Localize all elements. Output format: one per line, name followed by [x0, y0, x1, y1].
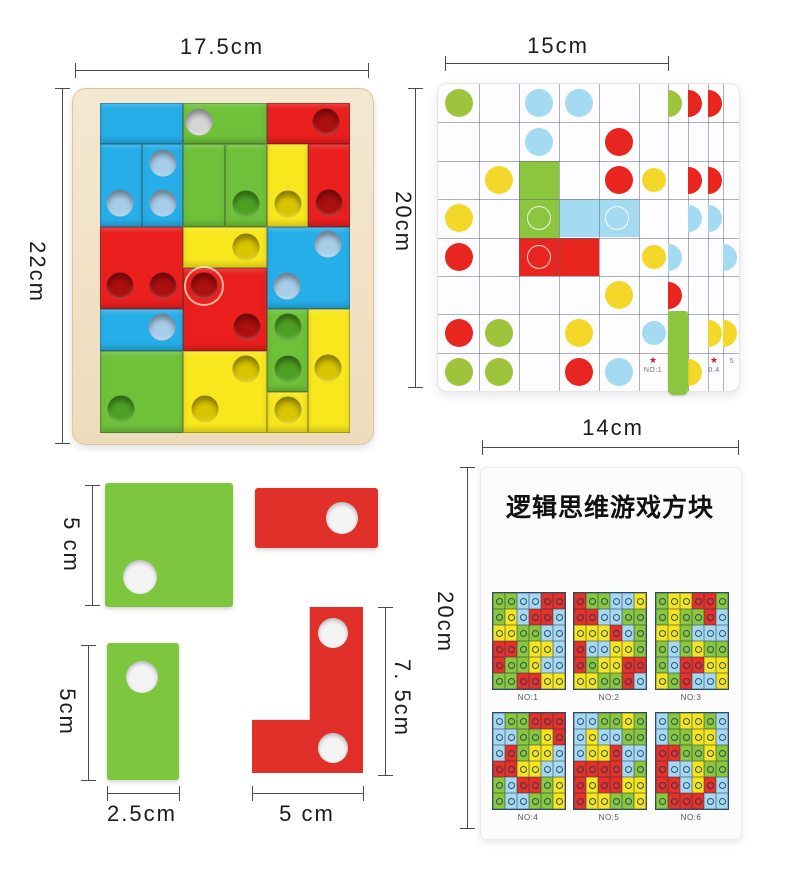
- mini-grid-cell: [610, 609, 622, 625]
- mini-grid-cell: [668, 657, 680, 673]
- mini-grid-cell: [505, 593, 517, 609]
- mini-grid-cell: [656, 777, 668, 793]
- dim-tick: [107, 786, 108, 801]
- mini-grid-cell: [529, 745, 541, 761]
- mini-grid-cell: [553, 673, 565, 689]
- dim-tick: [363, 786, 364, 801]
- mini-grid-cell: [692, 713, 704, 729]
- mini-grid-cell: [634, 641, 646, 657]
- mini-puzzle-label: NO:4: [518, 813, 539, 822]
- mini-grid-cell: [716, 761, 728, 777]
- mini-grid-cell: [668, 729, 680, 745]
- dim-tick: [55, 443, 70, 444]
- mini-grid-cell: [529, 777, 541, 793]
- mini-grid-cell: [586, 641, 598, 657]
- mini-grid-cell: [553, 593, 565, 609]
- board-dot-green: [445, 358, 473, 386]
- piece-hole: [326, 502, 358, 534]
- mini-grid-cell: [704, 593, 716, 609]
- piece-hole: [318, 618, 348, 648]
- game-height-label: 20cm: [390, 191, 416, 253]
- mini-grid-cell: [622, 777, 634, 793]
- mini-grid-cell: [517, 761, 529, 777]
- mini-grid-cell: [704, 745, 716, 761]
- mini-grid-cell: [634, 729, 646, 745]
- edge-card-half-dot: [668, 282, 682, 309]
- grid-line: [438, 314, 739, 315]
- mini-grid-cell: [692, 641, 704, 657]
- dim-tick: [378, 775, 393, 776]
- piece-dot: [192, 396, 219, 423]
- board-dot-green: [485, 319, 513, 347]
- puzzle-width-line: [75, 70, 368, 71]
- mini-grid-cell: [517, 641, 529, 657]
- mini-grid-cell: [610, 777, 622, 793]
- mini-grid-cell: [704, 625, 716, 641]
- mini-grid-cell: [668, 745, 680, 761]
- mini-grid-cell: [586, 657, 598, 673]
- mini-grid-cell: [716, 713, 728, 729]
- mini-puzzle-grid: [492, 592, 566, 690]
- mini-puzzle-label: NO:3: [681, 693, 702, 702]
- vertical-piece-height-line: [88, 645, 89, 780]
- board-dot-blue: [525, 89, 553, 117]
- mini-grid-cell: [680, 777, 692, 793]
- dim-tick: [368, 63, 369, 78]
- mini-grid-cell: [598, 793, 610, 809]
- piece-dot: [232, 191, 259, 218]
- piece-dot: [274, 191, 301, 218]
- mini-grid-cell: [529, 641, 541, 657]
- mini-grid-cell: [517, 729, 529, 745]
- mini-grid-cell: [505, 609, 517, 625]
- vertical-piece-width-label: 2.5cm: [107, 801, 177, 827]
- mini-grid-cell: [553, 625, 565, 641]
- mini-grid-cell: [622, 641, 634, 657]
- dim-tick: [668, 56, 669, 71]
- mini-grid-cell: [610, 593, 622, 609]
- mini-grid-cell: [668, 761, 680, 777]
- piece-dot: [148, 314, 175, 341]
- mini-grid-cell: [529, 793, 541, 809]
- board-dot-red: [445, 319, 473, 347]
- piece-dot: [149, 189, 176, 216]
- mini-grid-cell: [541, 745, 553, 761]
- mini-grid-cell: [634, 609, 646, 625]
- grid-line: [438, 353, 739, 354]
- mini-grid-cell: [622, 745, 634, 761]
- board-dot-yellow: [642, 168, 666, 192]
- piece-dot: [316, 189, 343, 216]
- mini-grid-cell: [610, 641, 622, 657]
- game-width-label: 15cm: [527, 33, 589, 59]
- mini-grid-cell: [622, 593, 634, 609]
- mini-grid-cell: [517, 793, 529, 809]
- mini-grid-cell: [622, 673, 634, 689]
- mini-grid-cell: [505, 625, 517, 641]
- mini-grid-cell: [692, 745, 704, 761]
- mini-grid-cell: [529, 729, 541, 745]
- piece-dot: [274, 314, 301, 341]
- mini-grid-cell: [610, 745, 622, 761]
- mini-grid-cell: [704, 641, 716, 657]
- mini-grid-cell: [517, 713, 529, 729]
- piece-dot: [149, 273, 176, 300]
- booklet-width-line: [482, 447, 738, 448]
- board-dot-green: [445, 89, 473, 117]
- mini-grid-cell: [529, 593, 541, 609]
- dim-tick: [738, 440, 739, 455]
- board-target-ring: [605, 206, 629, 230]
- mini-grid-cell: [704, 729, 716, 745]
- board-dot-green: [485, 358, 513, 386]
- grid-line: [438, 238, 739, 239]
- mini-grid-cell: [680, 729, 692, 745]
- mini-grid-cell: [680, 761, 692, 777]
- mini-grid-cell: [716, 625, 728, 641]
- booklet-height-label: 20cm: [432, 591, 458, 653]
- mini-grid-cell: [656, 657, 668, 673]
- star-icon: ★: [644, 356, 662, 365]
- dim-tick: [81, 645, 96, 646]
- mini-grid-cell: [598, 761, 610, 777]
- dim-tick: [378, 607, 393, 608]
- grid-line: [438, 122, 739, 123]
- mini-grid-cell: [598, 777, 610, 793]
- mini-grid-cell: [574, 609, 586, 625]
- dim-tick: [460, 828, 475, 829]
- mini-puzzle-grid: [573, 712, 647, 810]
- puzzle-piece-blue: [100, 103, 183, 144]
- mini-grid-cell: [598, 593, 610, 609]
- mini-grid-cell: [716, 609, 728, 625]
- puzzle-height-line: [62, 88, 63, 443]
- dim-tick: [75, 63, 76, 78]
- mini-grid-cell: [656, 793, 668, 809]
- mini-grid-cell: [680, 713, 692, 729]
- mini-grid-cell: [680, 745, 692, 761]
- piece-green-square: [105, 483, 233, 607]
- mini-grid-cell: [517, 777, 529, 793]
- piece-dot: [107, 396, 134, 423]
- mini-grid-cell: [622, 625, 634, 641]
- mini-grid-cell: [598, 729, 610, 745]
- star-icon: ★: [708, 356, 719, 365]
- mini-grid-cell: [541, 609, 553, 625]
- piece-dot: [314, 354, 341, 381]
- mini-grid-cell: [634, 793, 646, 809]
- mini-grid-cell: [574, 593, 586, 609]
- piece-hole: [318, 733, 348, 763]
- mini-puzzle-label: NO:2: [599, 693, 620, 702]
- mini-grid-cell: [493, 777, 505, 793]
- board-dot-yellow: [605, 281, 633, 309]
- mini-grid-cell: [668, 673, 680, 689]
- mini-grid-cell: [493, 625, 505, 641]
- mini-grid-cell: [716, 745, 728, 761]
- mini-grid-cell: [622, 729, 634, 745]
- mini-grid-cell: [586, 673, 598, 689]
- mini-grid-cell: [622, 713, 634, 729]
- mini-grid-cell: [529, 673, 541, 689]
- dim-tick: [408, 387, 423, 388]
- edge-card-half-dot: [708, 320, 722, 347]
- piece-dot: [232, 356, 259, 383]
- mini-grid-cell: [574, 729, 586, 745]
- mini-grid-cell: [656, 593, 668, 609]
- game-height-line: [415, 88, 416, 387]
- mini-grid-cell: [692, 761, 704, 777]
- mini-grid-cell: [574, 713, 586, 729]
- dim-tick: [460, 467, 475, 468]
- mini-grid-cell: [553, 729, 565, 745]
- mini-grid-cell: [553, 657, 565, 673]
- mini-grid-cell: [517, 625, 529, 641]
- card-tag-text: NO:1: [644, 367, 662, 374]
- dim-tick: [81, 780, 96, 781]
- logic-game-board: ★NO:1★0.45: [437, 83, 740, 392]
- puzzle-width-label: 17.5cm: [180, 34, 264, 60]
- piece-dot: [107, 273, 134, 300]
- board-target-ring: [527, 206, 551, 230]
- mini-grid-cell: [680, 657, 692, 673]
- mini-grid-cell: [505, 745, 517, 761]
- mini-grid-cell: [656, 641, 668, 657]
- mini-grid-cell: [610, 625, 622, 641]
- booklet-width-label: 14cm: [582, 415, 644, 441]
- card-tag: 5: [730, 356, 734, 365]
- mini-puzzle-label: NO:5: [599, 813, 620, 822]
- edge-card-half-dot: [723, 320, 737, 347]
- mini-grid-cell: [553, 777, 565, 793]
- mini-grid-cell: [656, 609, 668, 625]
- board-dot-red: [565, 358, 593, 386]
- mini-grid-cell: [656, 745, 668, 761]
- dim-tick: [482, 440, 483, 455]
- mini-grid-cell: [704, 713, 716, 729]
- mini-grid-cell: [598, 625, 610, 641]
- mini-grid-cell: [505, 641, 517, 657]
- mini-grid-cell: [541, 761, 553, 777]
- mini-grid-cell: [586, 745, 598, 761]
- mini-grid-cell: [574, 657, 586, 673]
- mini-grid-cell: [586, 625, 598, 641]
- mini-grid-cell: [692, 777, 704, 793]
- vertical-piece-height-label: 5cm: [54, 688, 80, 736]
- mini-grid-cell: [634, 713, 646, 729]
- square-height-label: 5 cm: [58, 517, 84, 573]
- mini-grid-cell: [586, 593, 598, 609]
- mini-grid-cell: [692, 657, 704, 673]
- dim-tick: [85, 485, 100, 486]
- booklet-title: 逻辑思维游戏方块: [480, 488, 740, 524]
- mini-grid-cell: [634, 625, 646, 641]
- mini-grid-cell: [622, 793, 634, 809]
- mini-grid-cell: [622, 761, 634, 777]
- card-tag-text: 5: [730, 358, 734, 365]
- mini-grid-cell: [586, 729, 598, 745]
- mini-grid-cell: [716, 593, 728, 609]
- board-dot-blue: [642, 321, 666, 345]
- mini-grid-cell: [704, 673, 716, 689]
- dim-tick: [252, 786, 253, 801]
- mini-grid-cell: [692, 793, 704, 809]
- mini-grid-cell: [610, 729, 622, 745]
- l-piece-width-line: [252, 793, 363, 794]
- edge-card-half-dot: [708, 90, 722, 117]
- mini-grid-cell: [704, 793, 716, 809]
- piece-dot: [274, 396, 301, 423]
- mini-grid-cell: [505, 761, 517, 777]
- mini-grid-cell: [704, 609, 716, 625]
- mini-grid-cell: [716, 673, 728, 689]
- piece-dot: [233, 314, 260, 341]
- mini-puzzle-grid: [655, 712, 729, 810]
- mini-grid-cell: [586, 793, 598, 809]
- mini-grid-cell: [598, 641, 610, 657]
- mini-grid-cell: [574, 745, 586, 761]
- mini-grid-cell: [541, 713, 553, 729]
- mini-grid-cell: [634, 657, 646, 673]
- piece-dot: [186, 108, 213, 135]
- mini-grid-cell: [517, 609, 529, 625]
- dim-tick: [445, 56, 446, 71]
- mini-grid-cell: [716, 641, 728, 657]
- dim-tick: [408, 88, 423, 89]
- mini-grid-cell: [680, 609, 692, 625]
- mini-grid-cell: [692, 673, 704, 689]
- mini-grid-cell: [598, 673, 610, 689]
- edge-card-half-dot: [688, 167, 702, 194]
- mini-grid-cell: [692, 729, 704, 745]
- grid-line: [438, 276, 739, 277]
- mini-grid-cell: [553, 793, 565, 809]
- mini-grid-cell: [529, 657, 541, 673]
- mini-puzzle-label: NO:1: [518, 693, 539, 702]
- puzzle-piece-green: [100, 351, 183, 434]
- mini-grid-cell: [680, 673, 692, 689]
- mini-grid-cell: [541, 729, 553, 745]
- mini-grid-cell: [610, 673, 622, 689]
- mini-grid-cell: [680, 593, 692, 609]
- mini-grid-cell: [553, 641, 565, 657]
- mini-grid-cell: [634, 761, 646, 777]
- mini-grid-cell: [668, 593, 680, 609]
- piece-dot: [315, 231, 342, 258]
- mini-grid-cell: [704, 761, 716, 777]
- mini-grid-cell: [680, 641, 692, 657]
- mini-grid-cell: [493, 593, 505, 609]
- mini-puzzle-label: NO:6: [681, 813, 702, 822]
- piece-dot: [273, 273, 300, 300]
- mini-grid-cell: [692, 593, 704, 609]
- mini-grid-cell: [541, 657, 553, 673]
- mini-grid-cell: [716, 777, 728, 793]
- vertical-piece-width-line: [107, 793, 179, 794]
- mini-grid-cell: [541, 641, 553, 657]
- card-tag: ★0.4: [708, 356, 719, 374]
- dim-tick: [179, 786, 180, 801]
- mini-grid-cell: [574, 777, 586, 793]
- mini-grid-cell: [505, 713, 517, 729]
- edge-card-half-dot: [688, 90, 702, 117]
- product-dimension-diagram: 17.5cm 22cm 15cm 20cm ★NO:1★0.45 14cm 20…: [0, 0, 790, 870]
- mini-grid-cell: [668, 609, 680, 625]
- mini-grid-cell: [505, 793, 517, 809]
- mini-grid-cell: [505, 673, 517, 689]
- square-height-line: [92, 485, 93, 605]
- mini-grid-cell: [505, 729, 517, 745]
- mini-grid-cell: [574, 625, 586, 641]
- edge-card-half-dot: [668, 244, 682, 271]
- mini-grid-cell: [634, 673, 646, 689]
- mini-grid-cell: [656, 673, 668, 689]
- mini-puzzle-grid: [573, 592, 647, 690]
- mini-grid-cell: [517, 745, 529, 761]
- mini-grid-cell: [680, 625, 692, 641]
- mini-grid-cell: [529, 625, 541, 641]
- mini-grid-cell: [668, 625, 680, 641]
- piece-hole: [123, 560, 157, 594]
- board-dot-blue: [605, 358, 633, 386]
- board-dot-red: [605, 166, 633, 194]
- mini-grid-cell: [517, 673, 529, 689]
- mini-grid-cell: [529, 713, 541, 729]
- green-slider-bar: [668, 311, 688, 395]
- mini-grid-cell: [574, 673, 586, 689]
- mini-grid-cell: [610, 761, 622, 777]
- mini-grid-cell: [493, 609, 505, 625]
- mini-puzzle-grid: [492, 712, 566, 810]
- mini-grid-cell: [493, 761, 505, 777]
- dim-tick: [85, 605, 100, 606]
- mini-grid-cell: [574, 761, 586, 777]
- piece-hole: [126, 661, 158, 693]
- game-width-line: [445, 63, 668, 64]
- mini-grid-cell: [656, 729, 668, 745]
- board-dot-yellow: [485, 166, 513, 194]
- edge-card-half-dot: [688, 205, 702, 232]
- mini-grid-cell: [610, 713, 622, 729]
- piece-red-rectangle: [255, 488, 378, 548]
- l-piece-width-label: 5 cm: [279, 801, 335, 827]
- mini-grid-cell: [493, 793, 505, 809]
- mini-grid-cell: [493, 641, 505, 657]
- mini-puzzle-grid: [655, 592, 729, 690]
- edge-card-half-dot: [708, 205, 722, 232]
- mini-grid-cell: [541, 625, 553, 641]
- mini-grid-cell: [668, 641, 680, 657]
- mini-grid-cell: [634, 777, 646, 793]
- mini-grid-cell: [598, 609, 610, 625]
- mini-grid-cell: [553, 745, 565, 761]
- piece-dot: [232, 234, 259, 261]
- mini-grid-cell: [610, 657, 622, 673]
- mini-grid-cell: [704, 657, 716, 673]
- edge-card-half-dot: [688, 359, 702, 386]
- booklet-height-line: [467, 467, 468, 828]
- piece-dot: [274, 356, 301, 383]
- board-dot-blue: [525, 128, 553, 156]
- mini-grid-cell: [692, 609, 704, 625]
- piece-dot: [149, 149, 176, 176]
- mini-grid-cell: [668, 793, 680, 809]
- mini-grid-cell: [634, 593, 646, 609]
- l-piece-height-line: [385, 607, 386, 775]
- mini-grid-cell: [541, 673, 553, 689]
- mini-grid-cell: [610, 793, 622, 809]
- mini-grid-cell: [541, 777, 553, 793]
